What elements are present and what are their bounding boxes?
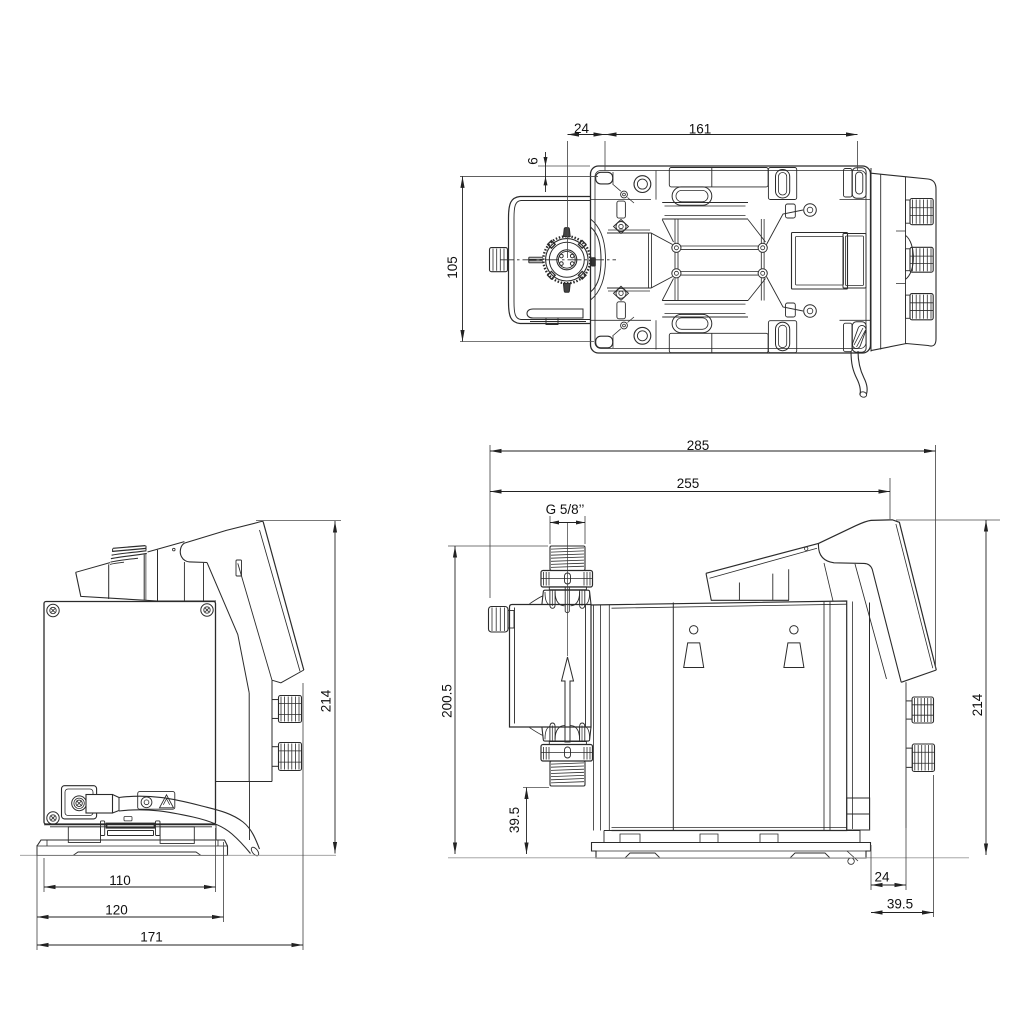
svg-text:39.5: 39.5 [887, 897, 913, 912]
svg-text:105: 105 [445, 256, 460, 279]
svg-text:120: 120 [105, 903, 128, 918]
svg-text:39.5: 39.5 [507, 807, 522, 833]
svg-text:G 5/8’’: G 5/8’’ [546, 502, 585, 517]
svg-text:110: 110 [109, 873, 131, 888]
svg-text:161: 161 [689, 122, 712, 137]
svg-text:255: 255 [677, 476, 700, 491]
svg-text:24: 24 [874, 870, 890, 885]
svg-text:24: 24 [574, 121, 590, 136]
svg-text:200.5: 200.5 [440, 684, 455, 718]
svg-text:214: 214 [970, 693, 985, 716]
svg-text:214: 214 [319, 689, 334, 712]
svg-text:6: 6 [526, 157, 541, 165]
svg-text:171: 171 [140, 930, 163, 945]
svg-text:285: 285 [687, 438, 710, 453]
